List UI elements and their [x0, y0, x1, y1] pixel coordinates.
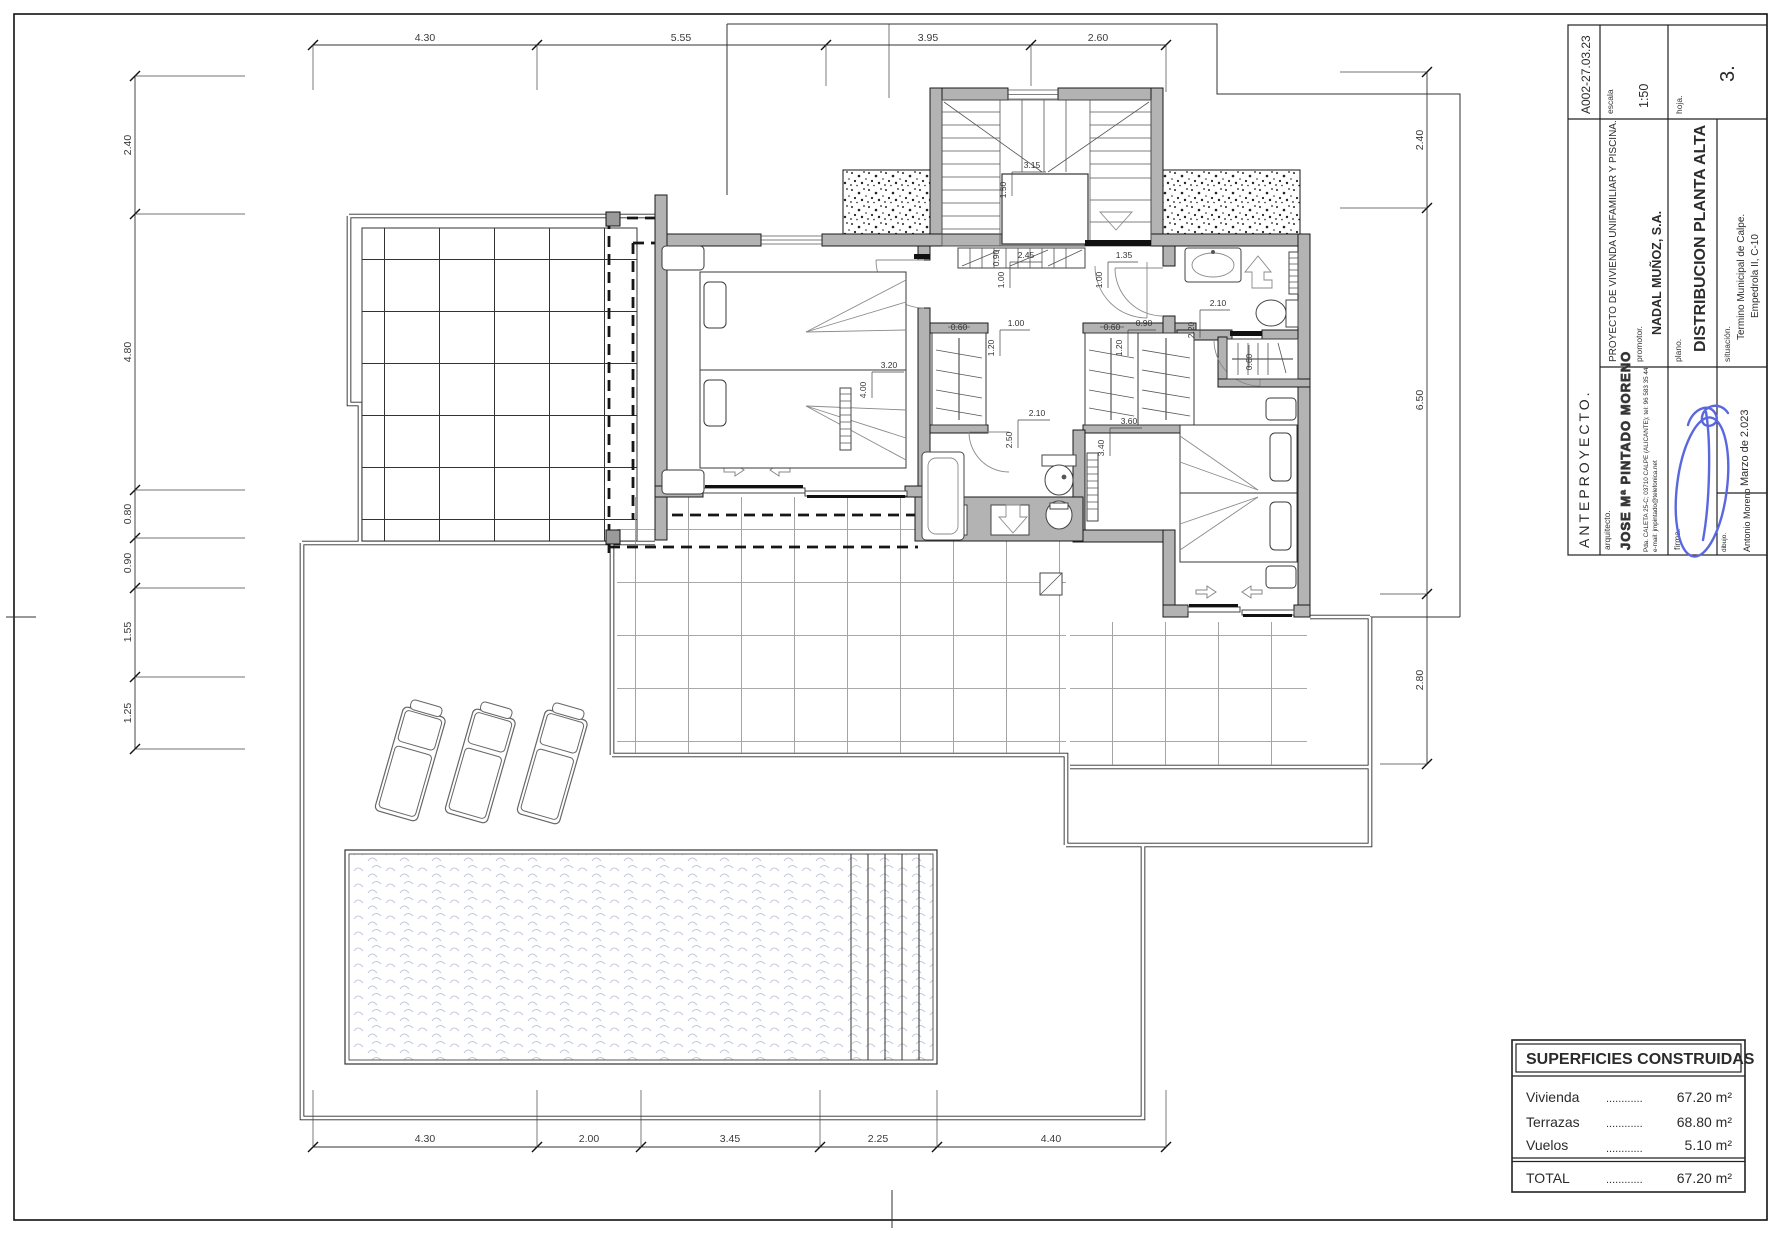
tap [1211, 250, 1215, 254]
hoja-value: 3. [1717, 65, 1739, 82]
dim-label: 5.55 [671, 32, 692, 44]
title-block: A002-27.03.23 ANTEPROYECTO. escala 1:50 … [1568, 25, 1767, 560]
lounger-2 [444, 699, 519, 824]
interior-dim: 3.20 [881, 360, 898, 370]
dim-label: 2.60 [1088, 32, 1109, 44]
pillow [704, 282, 726, 328]
interior-dim: 1.00 [1094, 271, 1104, 288]
dim-label: 2.40 [1414, 130, 1426, 151]
stair-direction-arrow [1100, 212, 1132, 230]
escala-label: escala [1605, 89, 1615, 114]
bathroom-top-right [1185, 248, 1298, 327]
stage-label: ANTEPROYECTO. [1576, 389, 1592, 548]
drawing-code: A002-27.03.23 [1579, 35, 1593, 114]
utility-unit-2 [991, 505, 1029, 535]
dim-label: 2.80 [1414, 670, 1426, 691]
interior-dim: 1.35 [1116, 250, 1133, 260]
area-label: Vivienda [1526, 1089, 1580, 1105]
entry-arrow-icon [1245, 256, 1272, 288]
escala-value: 1:50 [1637, 84, 1651, 108]
dim-label: 4.80 [122, 342, 134, 363]
project-title: PROYECTO DE VIVIENDA UNIFAMILIAR Y PISCI… [1608, 120, 1619, 362]
pergola-grid [362, 228, 637, 541]
interior-dim: 1.20 [986, 339, 996, 356]
areas-table: SUPERFICIES CONSTRUIDAS Vivienda .......… [1512, 1040, 1755, 1192]
lounger-1 [374, 697, 449, 822]
architect-address: Pda. CALETA 25-C; 03710 CALPE (ALICANTE)… [1643, 366, 1650, 552]
areas-title: SUPERFICIES CONSTRUIDAS [1526, 1051, 1755, 1068]
dimension-left: 2.40 4.80 0.80 0.90 1.55 1.25 [122, 71, 245, 754]
dimension-top: 4.30 5.55 3.95 2.60 [308, 32, 1171, 92]
pool [345, 850, 937, 1064]
interior-dim: 0.90 [991, 249, 1001, 266]
dim-label: 1.55 [122, 622, 134, 643]
date-value: Marzo de 2.023 [1739, 410, 1751, 486]
arrow-icon [1196, 586, 1216, 598]
drawing-sheet: 4.30 5.55 3.95 2.60 4.30 2.00 3.45 2.25 … [0, 0, 1782, 1234]
dim-label: 1.25 [122, 703, 134, 724]
total-label: TOTAL [1526, 1170, 1570, 1186]
pillow [704, 380, 726, 426]
area-value: 5.10 m² [1685, 1137, 1733, 1153]
planter-left [843, 170, 930, 234]
dim-label: 2.25 [868, 1133, 889, 1145]
pillow [1270, 433, 1291, 481]
closet-east [1227, 339, 1298, 379]
closet-1 [932, 333, 986, 425]
stair-sill [1085, 240, 1151, 246]
nightstand [662, 246, 704, 270]
interior-dim: 1.20 [1114, 339, 1124, 356]
dim-label: 6.50 [1414, 390, 1426, 411]
closet-2 [1085, 333, 1138, 425]
bedroom-left [662, 246, 906, 494]
door-bath [969, 432, 1009, 472]
dimension-bottom: 4.30 2.00 3.45 2.25 4.40 [308, 1090, 1171, 1152]
arrow-icon [1242, 586, 1262, 598]
bed-single-2 [700, 370, 906, 468]
area-label: Vuelos [1526, 1137, 1568, 1153]
interior-dim: 4.00 [858, 381, 868, 398]
dim-label: 4.30 [415, 32, 436, 44]
interior-dim: 3.15 [1024, 160, 1041, 170]
leader-dots: ............ [1606, 1174, 1643, 1186]
interior-dim: 2.10 [1029, 408, 1046, 418]
dibujo-value: Antonio Moreno [1742, 488, 1752, 552]
interior-dim: 1.00 [996, 271, 1006, 288]
architect-email: e-mail: jmpintado@telefonica.net [1652, 460, 1659, 552]
interior-dim: 2.50 [1004, 431, 1014, 448]
closet-3 [1138, 333, 1194, 425]
interior-dim: 3.40 [1096, 439, 1106, 456]
leader-dots: ............ [1606, 1118, 1643, 1130]
nightstand [662, 470, 704, 494]
interior-dim: 3.60 [1121, 416, 1138, 426]
architect-name: JOSE Mª PINTADO MORENO [1618, 351, 1633, 550]
bedroom-window [761, 236, 822, 244]
radiator [1087, 453, 1098, 521]
door-east-hall [1115, 268, 1163, 316]
dim-label: 3.45 [720, 1133, 741, 1145]
hoja-label: hoja. [1674, 96, 1684, 114]
arquitecto-label: arquitecto. [1602, 510, 1612, 550]
area-value: 68.80 m² [1677, 1114, 1733, 1130]
interior-dim: 1.50 [998, 181, 1008, 198]
interior-dim: 2.10 [1210, 298, 1227, 308]
dim-label: 0.80 [122, 504, 134, 525]
situacion-label: situación. [1722, 326, 1732, 362]
dim-label: 2.00 [579, 1133, 600, 1145]
situacion-line1: Termino Municipal de Calpe. [1736, 214, 1747, 340]
bed-single-1 [700, 272, 906, 370]
stair-window [1008, 90, 1058, 99]
dim-label: 2.40 [122, 135, 134, 156]
area-label: Terrazas [1526, 1114, 1580, 1130]
area-value: 67.20 m² [1677, 1089, 1733, 1105]
interior-dim: 2.45 [1018, 250, 1035, 260]
plano-value: DISTRIBUCION PLANTA ALTA [1692, 124, 1709, 352]
promotor-label: promotor. [1634, 326, 1644, 362]
total-value: 67.20 m² [1677, 1170, 1733, 1186]
plano-label: plano. [1673, 339, 1683, 362]
dim-label: 3.95 [918, 32, 939, 44]
interior-dim: 0.90 [1136, 318, 1153, 328]
slider-bedroom-south [703, 464, 907, 498]
floor-plan-svg: 4.30 5.55 3.95 2.60 4.30 2.00 3.45 2.25 … [0, 0, 1782, 1234]
promotor-value: NADAL MUÑOZ, S.A. [1649, 211, 1664, 335]
dim-label: 0.90 [122, 553, 134, 574]
bidet [1046, 501, 1072, 529]
stair-landing [1002, 174, 1088, 244]
interior-dim: 2.20 [1186, 321, 1196, 338]
leader-dots: ............ [1606, 1093, 1643, 1105]
dimension-right: 2.40 6.50 2.80 [1340, 67, 1432, 769]
interior-dim: 1.00 [1008, 318, 1025, 328]
pillow [1270, 502, 1291, 550]
planter-right [1163, 170, 1300, 234]
deck-tiles-east [1070, 622, 1307, 765]
deck-drain [1040, 573, 1062, 595]
leader-dots: ............ [1606, 1143, 1643, 1155]
radiator [840, 388, 851, 450]
dim-label: 4.30 [415, 1133, 436, 1145]
radiator [1289, 252, 1298, 294]
lounger-3 [516, 700, 591, 825]
situacion-line2: Empedrola II, C-10 [1750, 234, 1761, 318]
interior-dim-struck: 0.60 [948, 322, 970, 332]
pergola-post-bottom [606, 530, 620, 544]
toilet [1042, 455, 1076, 495]
slider-master-south [1188, 586, 1294, 617]
dim-label: 4.40 [1041, 1133, 1062, 1145]
nightstand [1266, 566, 1296, 588]
pergola-post-top [606, 212, 620, 226]
bedroom-master [1180, 398, 1297, 588]
dibujo-label: dibujo. [1721, 533, 1728, 552]
sun-loungers [374, 697, 591, 825]
nightstand [1266, 398, 1296, 420]
toilet [1256, 300, 1298, 327]
